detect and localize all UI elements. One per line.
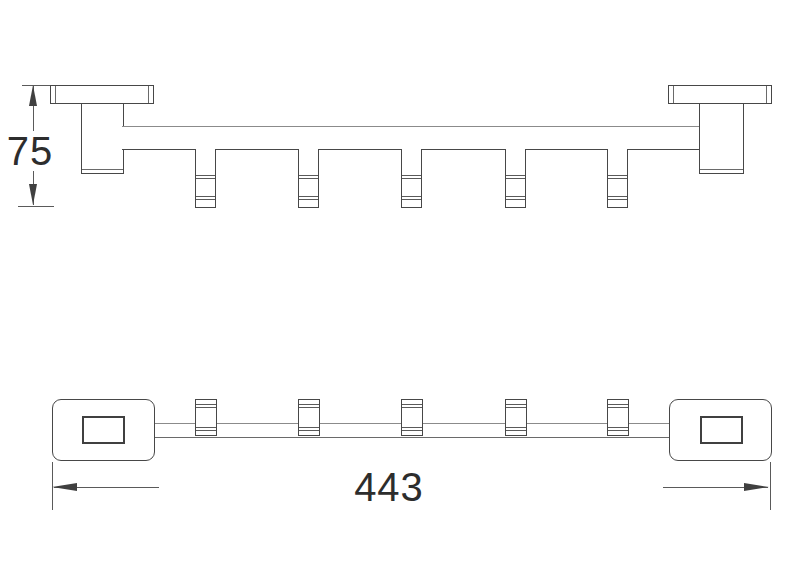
hook-front [195,149,216,208]
hook-cap-line [506,427,526,431]
hook-plan [607,399,629,436]
width-dimension: 443 [0,455,800,525]
cap-seam-line [673,86,674,103]
cap-seam-line [55,86,56,103]
extension-line-top [22,85,53,86]
hook-front [401,149,422,208]
hook-cap-line [608,404,628,408]
hook-plan [195,399,217,436]
hook-plan [298,399,320,436]
hook-front [505,149,526,208]
hook-collar-line [402,175,421,179]
hook-collar-line [506,175,525,179]
post-foot-line [82,169,123,170]
hook-front [607,149,628,208]
hook-collar-line [196,175,215,179]
cap-seam-line [148,86,149,103]
hook-cap-line [402,427,422,431]
hook-cap-line [299,404,319,408]
hook-tip-line [196,196,215,200]
hook-tip-line [402,196,421,200]
left-bracket-cap [50,85,154,104]
hook-cap-line [608,427,628,431]
mounting-bar-front [122,126,700,150]
hook-cap-line [196,427,216,431]
technical-drawing-canvas: 75 [0,0,800,582]
extension-line-right [770,462,771,510]
front-elevation-view: 75 [0,0,800,230]
post-foot-line [700,169,743,170]
hook-tip-line [506,196,525,200]
extension-line-bottom [18,206,54,207]
hook-plan [505,399,527,436]
right-bracket-cap [668,85,772,104]
left-post-section-plan [82,416,125,444]
arrowhead-down-icon [29,184,37,205]
arrowhead-left-icon [52,483,77,491]
hook-cap-line [402,404,422,408]
width-dimension-label: 443 [339,467,439,507]
hook-cap-line [196,404,216,408]
arrowhead-up-icon [29,85,37,106]
hook-cap-line [506,404,526,408]
hook-front [298,149,319,208]
right-post-section-plan [700,416,743,444]
hook-tip-line [608,196,627,200]
hook-tip-line [299,196,318,200]
hook-collar-line [299,175,318,179]
hook-plan [401,399,423,436]
hook-cap-line [299,427,319,431]
cap-seam-line [766,86,767,103]
arrowhead-right-icon [744,483,769,491]
left-bracket-post [81,104,124,175]
right-bracket-post [699,104,744,175]
hook-collar-line [608,175,627,179]
height-dimension-label: 75 [2,131,58,171]
